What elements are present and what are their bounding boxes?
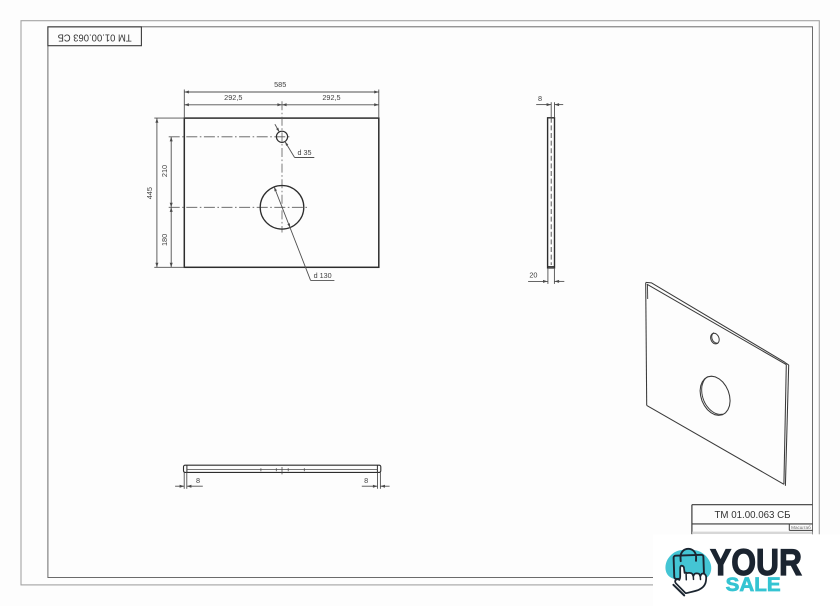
svg-text:d 35: d 35 — [298, 148, 312, 157]
svg-text:TM 01.00.063 СБ: TM 01.00.063 СБ — [715, 509, 791, 521]
svg-text:8: 8 — [196, 476, 200, 485]
svg-text:292,5: 292,5 — [322, 93, 340, 102]
svg-text:292,5: 292,5 — [224, 93, 242, 102]
svg-text:8: 8 — [538, 94, 542, 103]
svg-text:SALE: SALE — [726, 575, 781, 596]
svg-text:20: 20 — [529, 271, 537, 280]
svg-text:8: 8 — [364, 476, 368, 485]
svg-text:210: 210 — [160, 165, 169, 177]
svg-text:TM 01.00.063 СБ: TM 01.00.063 СБ — [57, 31, 131, 42]
svg-text:585: 585 — [274, 80, 286, 89]
svg-text:445: 445 — [145, 187, 154, 199]
svg-text:180: 180 — [160, 234, 169, 246]
svg-text:d 130: d 130 — [314, 271, 332, 280]
svg-text:Масштаб: Масштаб — [791, 525, 811, 530]
